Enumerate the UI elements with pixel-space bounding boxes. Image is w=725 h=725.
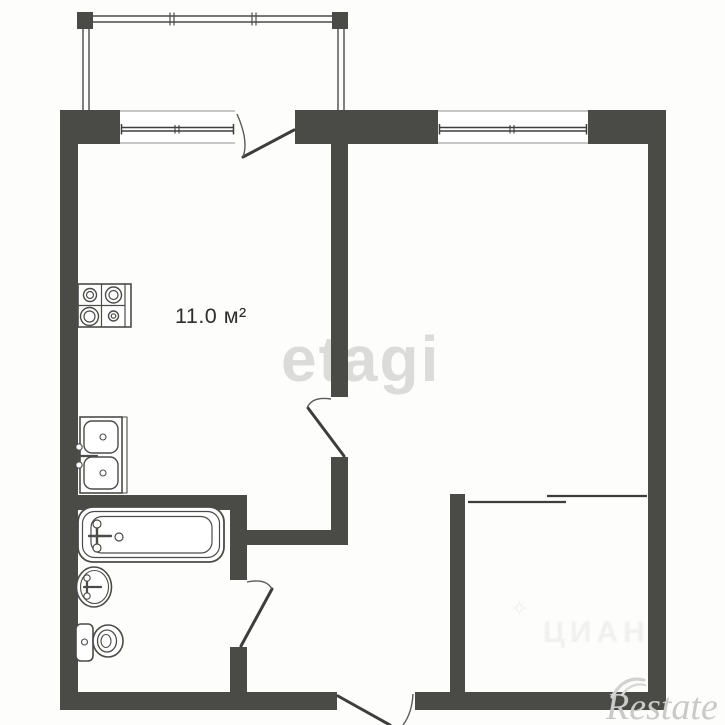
toilet-icon — [76, 624, 123, 661]
wall-closet-left — [450, 494, 465, 692]
washbasin-icon — [77, 567, 112, 607]
closet-sliding-doors — [468, 496, 647, 502]
kitchen-area-label: 11.0 м² — [175, 304, 247, 328]
balcony-door — [237, 114, 294, 157]
kitchen-door — [307, 398, 344, 456]
door-leaf — [308, 408, 344, 456]
wall-bathroom-right-upper — [230, 510, 247, 580]
bathroom-door — [241, 581, 272, 646]
entrance-door — [338, 694, 413, 725]
kitchen-sink-icon — [74, 417, 127, 493]
wall-right-outer — [648, 110, 666, 710]
door-swing-arc — [403, 694, 413, 725]
living-room-window — [438, 110, 588, 144]
door-leaf — [241, 589, 272, 646]
walls — [60, 110, 666, 710]
door-swing-arc — [307, 398, 331, 408]
restate-watermark: Restate — [606, 688, 718, 725]
wall-bathroom-right-lower — [230, 647, 247, 692]
kitchen-balcony-window — [120, 110, 235, 144]
balcony-post-right — [332, 12, 348, 29]
wall-bottom-left — [60, 692, 337, 710]
balcony — [77, 12, 348, 110]
balcony-railing — [78, 13, 346, 110]
door-swing-arc — [237, 114, 245, 157]
restate-swoosh-icon — [608, 673, 652, 699]
door-leaf — [243, 130, 294, 157]
floor-plan-image: etagi ✧ ЦИАН — [0, 0, 725, 725]
balcony-post-left — [77, 12, 93, 29]
door-leaf — [338, 696, 390, 725]
wall-top-middle — [295, 110, 438, 144]
stove-icon — [78, 284, 131, 327]
wall-left-outer — [60, 110, 78, 710]
door-swing-arc — [247, 581, 272, 589]
bathtub-icon — [78, 507, 224, 562]
floor-plan-svg: 11.0 м² — [0, 0, 725, 725]
wall-divider-upper — [331, 144, 348, 397]
wall-hallway-top — [245, 530, 348, 545]
